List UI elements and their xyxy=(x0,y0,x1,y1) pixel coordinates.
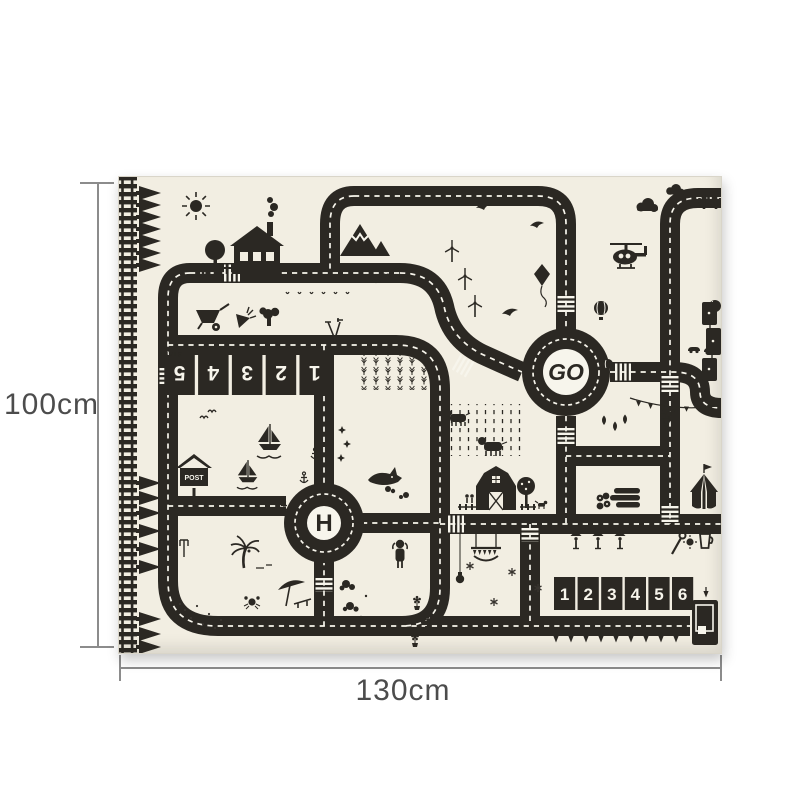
railroad-track xyxy=(118,176,137,654)
svg-text:4: 4 xyxy=(631,585,641,604)
svg-text:2: 2 xyxy=(275,361,287,384)
parking-numbers-bottom: 1 2 3 4 5 6 xyxy=(554,577,693,610)
svg-text:5: 5 xyxy=(173,361,185,384)
carrot-icon xyxy=(236,307,256,328)
sailboat-icon xyxy=(257,424,281,458)
height-dimension-tick-bottom xyxy=(80,646,114,648)
height-dimension-label: 100cm xyxy=(4,388,96,422)
cars xyxy=(688,347,716,354)
beach-umbrella-icon xyxy=(278,580,311,608)
svg-text:3: 3 xyxy=(607,585,616,604)
kite-icon xyxy=(534,264,550,307)
trapeze-icon xyxy=(471,534,501,561)
wheelbarrow-icon xyxy=(196,304,229,331)
width-dimension-line xyxy=(120,667,721,669)
go-roundabout: GO xyxy=(522,328,610,416)
wrench-gear-icon xyxy=(672,533,697,555)
log-pile xyxy=(597,488,640,509)
go-label: GO xyxy=(548,359,584,385)
helicopter-icon xyxy=(610,244,647,268)
house-icon xyxy=(230,197,284,274)
crab-icon xyxy=(244,596,260,609)
svg-text:5: 5 xyxy=(654,585,663,604)
shark-icon xyxy=(368,467,402,485)
cup-icon xyxy=(700,534,712,548)
mountain-icon xyxy=(340,224,390,256)
farmers-icon xyxy=(465,494,474,503)
flying-birds xyxy=(476,203,544,316)
sprouts-row xyxy=(286,292,349,294)
pine-forest xyxy=(136,186,161,654)
hot-air-balloons xyxy=(594,300,721,373)
svg-text:4: 4 xyxy=(207,361,219,384)
parking-numbers-top: 1 2 3 4 5 xyxy=(164,355,330,395)
dog-icon xyxy=(535,501,547,509)
svg-text:1: 1 xyxy=(560,585,569,604)
svg-text:1: 1 xyxy=(309,361,321,384)
height-dimension-tick-top xyxy=(80,182,114,184)
circus-tent-icon xyxy=(690,464,718,510)
hanging-lamp-icon xyxy=(456,534,464,583)
train-wagons xyxy=(702,302,721,381)
svg-text:6: 6 xyxy=(678,585,687,604)
chimney-smoke-icon xyxy=(267,197,278,217)
helipad-label: H xyxy=(315,510,332,537)
broccoli-icon xyxy=(259,307,279,326)
container-box xyxy=(692,600,718,645)
start-label: START xyxy=(159,350,182,357)
kid-figure xyxy=(393,540,408,568)
helipad: H xyxy=(284,483,364,563)
palm-tree-icon xyxy=(231,536,272,568)
teardrop-balloons xyxy=(602,415,627,432)
sailboat-icon-2 xyxy=(237,460,257,489)
stars xyxy=(337,426,351,462)
apple-tree-icon xyxy=(517,477,535,508)
rock-bushes xyxy=(385,486,409,499)
product-dimension-image: 100cm 130cm xyxy=(0,0,800,800)
small-birds xyxy=(200,410,216,418)
fork-icon xyxy=(180,540,188,557)
sun-icon xyxy=(182,192,210,220)
street-lamps xyxy=(571,533,626,549)
leafy-bushes xyxy=(340,580,368,618)
svg-text:3: 3 xyxy=(241,361,253,384)
width-dimension-label: 130cm xyxy=(318,674,488,708)
width-dimension-tick-left xyxy=(119,655,121,681)
wheat-field xyxy=(356,354,428,390)
svg-text:2: 2 xyxy=(583,585,592,604)
width-dimension-tick-right xyxy=(720,655,722,681)
play-mat: GO H 1 2 3 4 5 START xyxy=(118,176,722,654)
post-label: POST xyxy=(184,475,204,482)
